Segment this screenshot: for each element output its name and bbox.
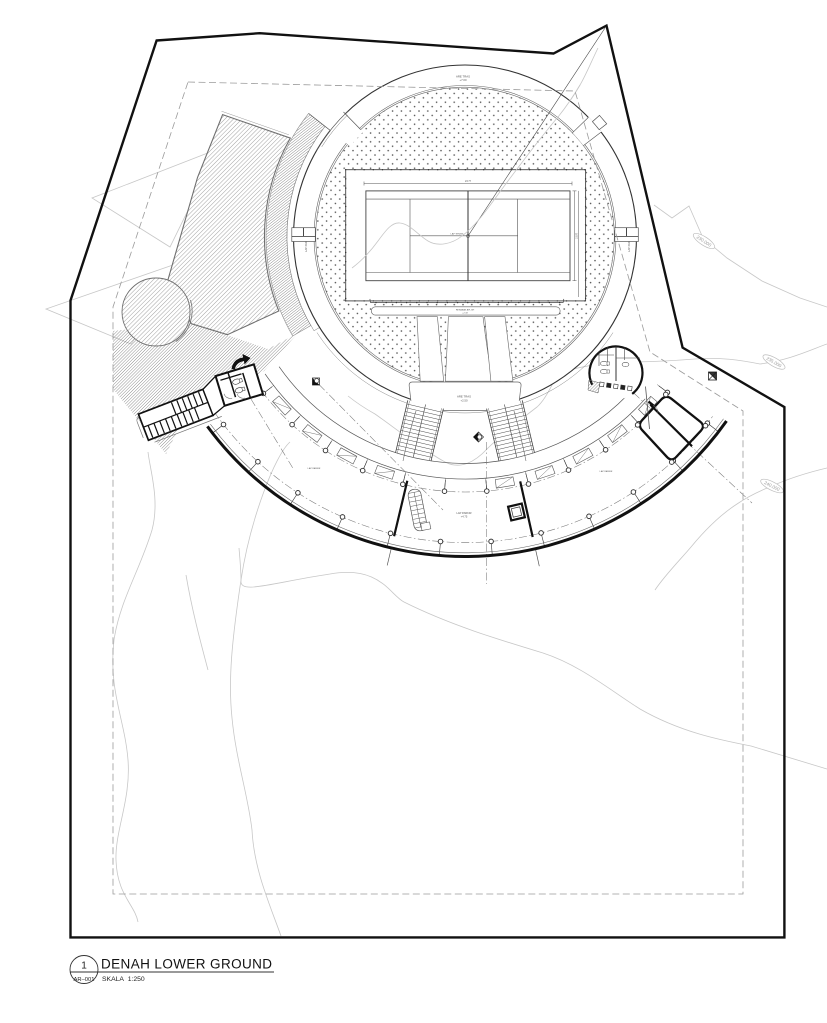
svg-text:23.77: 23.77	[465, 180, 472, 183]
svg-text:LAP PARKIR: LAP PARKIR	[308, 467, 321, 470]
svg-text:REKABAN APLGH: REKABAN APLGH	[456, 308, 475, 311]
svg-text:+4.75: +4.75	[461, 515, 468, 519]
svg-text:SKALA 1:250: SKALA 1:250	[102, 976, 145, 983]
svg-text:LAP PAD: LAP PAD	[304, 241, 308, 252]
svg-text:LAP PARKIR: LAP PARKIR	[600, 470, 613, 473]
svg-text:+7.00: +7.00	[459, 78, 467, 82]
svg-text:LAP TENNIS: LAP TENNIS	[451, 233, 464, 236]
svg-text:10.97: 10.97	[576, 232, 579, 239]
svg-text:LAP PAD: LAP PAD	[627, 241, 631, 252]
svg-text:+2.50: +2.50	[460, 399, 468, 403]
svg-text:+2.18: +2.18	[462, 312, 468, 314]
svg-text:1: 1	[81, 961, 87, 972]
svg-text:DENAH LOWER GROUND: DENAH LOWER GROUND	[101, 957, 272, 972]
svg-text:LAP PARKIR: LAP PARKIR	[456, 511, 471, 515]
svg-text:AR–001: AR–001	[74, 977, 95, 983]
